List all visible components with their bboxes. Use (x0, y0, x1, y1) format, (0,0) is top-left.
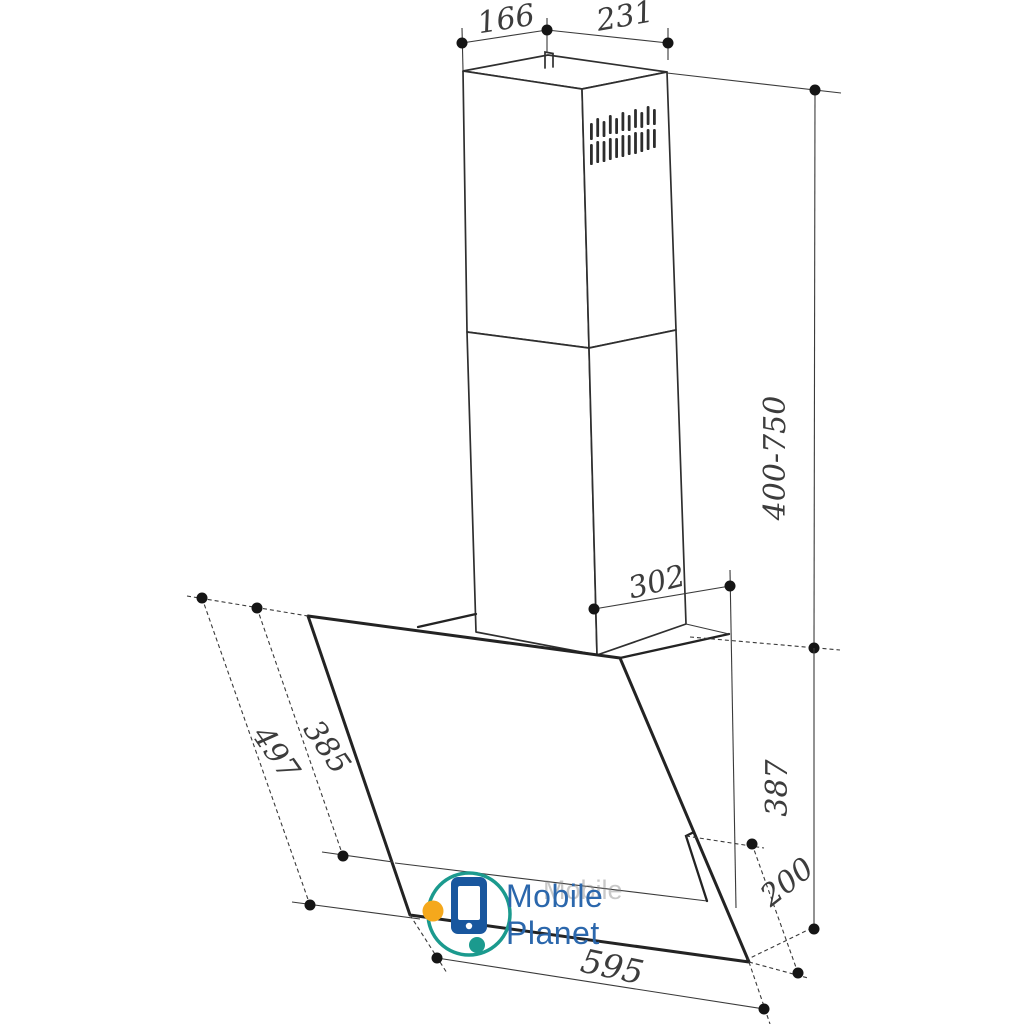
phone-screen (458, 886, 480, 920)
ext-line (746, 928, 812, 960)
logo-teal-dot (469, 937, 485, 953)
logo-orange-dot (423, 901, 444, 922)
hood-dimension-diagram: 166 231 400-750 302 387 200 385 497 (0, 0, 1024, 1024)
technical-drawing-page: 166 231 400-750 302 387 200 385 497 (0, 0, 1024, 1024)
watermark-logo: Mobile Mobile Planet (423, 873, 623, 955)
chimney-upper-left-face (463, 71, 589, 348)
body-corner-step (686, 832, 707, 901)
dim-label-panel-full: 497 (244, 719, 307, 788)
ext-line (730, 570, 736, 908)
chimney-lower-left-face (467, 332, 597, 655)
ext-line (749, 962, 770, 1024)
hood-top-left-edge (418, 614, 476, 627)
dim-line-chimney-height (814, 90, 815, 648)
ext-line (462, 28, 463, 70)
dim-label-chimney-width: 231 (593, 0, 656, 39)
chimney-upper-right-face (582, 72, 676, 348)
hood-top-back-edge (686, 624, 729, 634)
dim-label-lower-section: 200 (753, 851, 820, 914)
watermark-line1: Mobile (506, 878, 603, 914)
chimney-lower-right-face (589, 330, 686, 655)
phone-home-button (466, 923, 472, 929)
watermark-line2: Planet (506, 915, 600, 951)
dim-label-chimney-depth: 166 (475, 0, 537, 41)
ext-line (322, 852, 393, 862)
dim-label-body-height: 387 (760, 758, 795, 816)
dim-label-chimney-height-range: 400-750 (758, 396, 793, 522)
